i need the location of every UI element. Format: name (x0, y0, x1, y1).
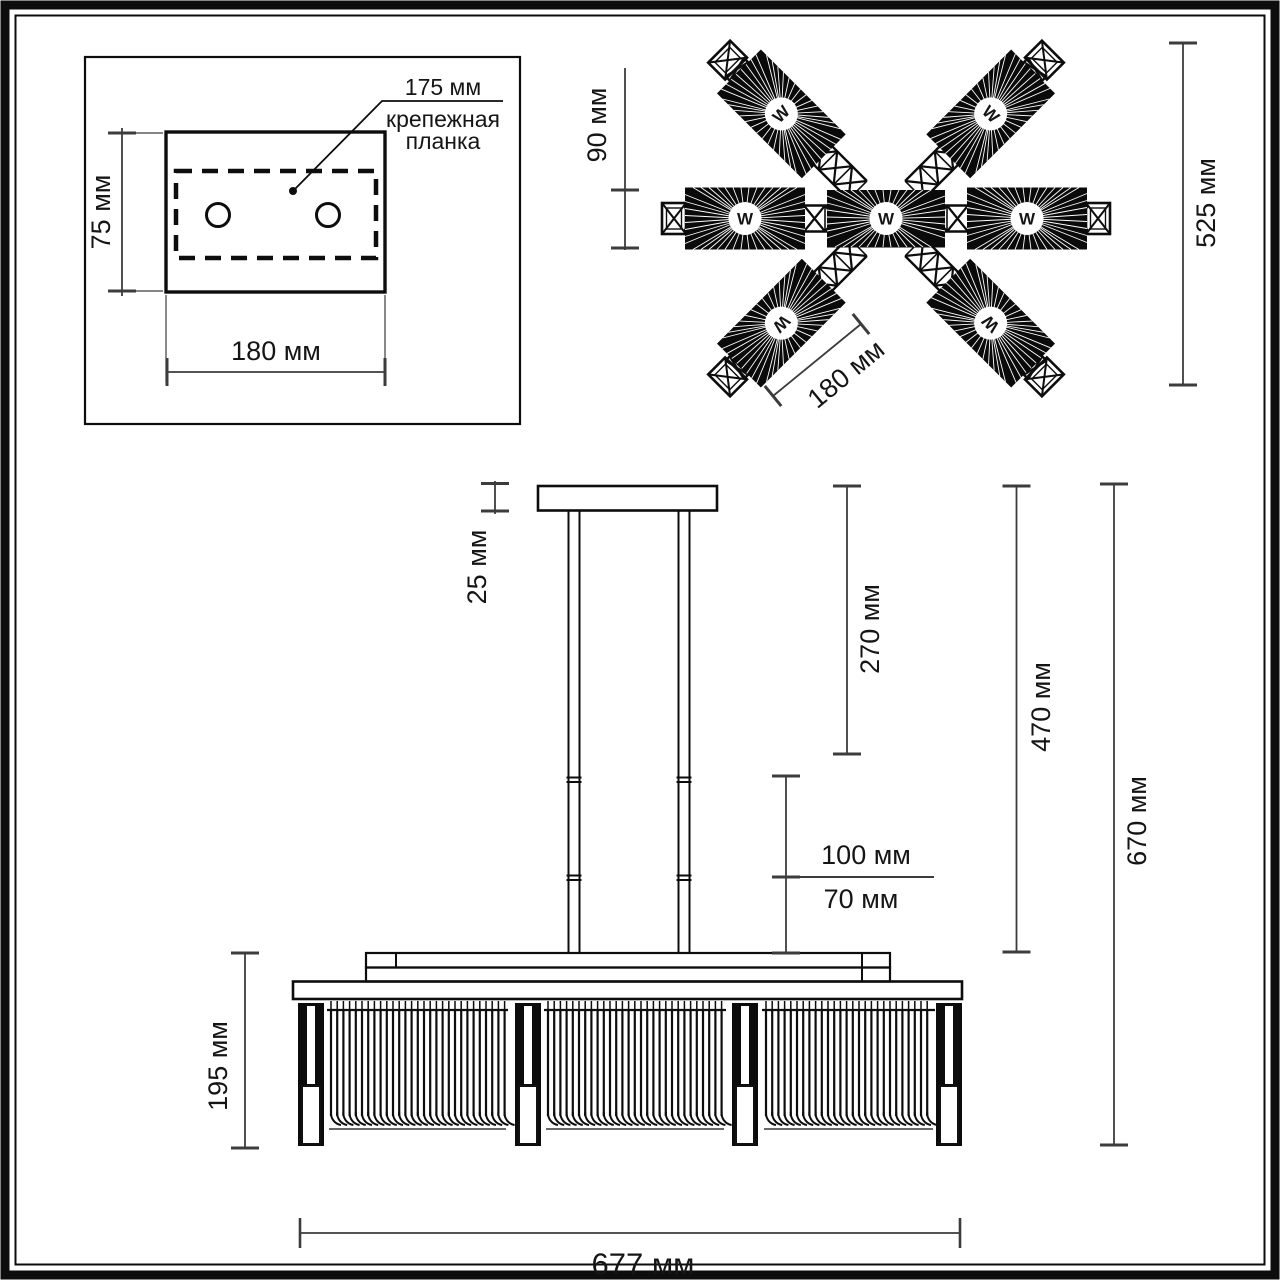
dim-195-label: 195 мм (203, 1021, 233, 1111)
dim-270-label: 270 мм (855, 584, 885, 674)
candle-post (298, 1003, 324, 1146)
dim-25-label: 25 мм (462, 530, 492, 605)
callout-label-2: планка (406, 128, 481, 154)
dim-100-label: 100 мм (821, 840, 911, 870)
post-slot (741, 1006, 749, 1084)
dim-470-label: 470 мм (1026, 662, 1056, 752)
lamp-wattage-mark: W (878, 210, 895, 229)
post-slot (945, 1006, 953, 1084)
dim-180-label: 180 мм (231, 336, 321, 366)
candle-post (732, 1003, 758, 1146)
post-slot (524, 1006, 532, 1084)
candle-sleeve (736, 1086, 754, 1144)
candle-sleeve (940, 1086, 958, 1144)
dim-75-label: 75 мм (86, 175, 116, 250)
candle-post (515, 1003, 541, 1146)
technical-drawing: 175 ммкрепежнаяпланка75 мм180 ммWWWWWWW9… (0, 0, 1280, 1280)
dim-677-label: 677 мм (592, 1247, 695, 1280)
lamp-wattage-mark: W (737, 210, 754, 229)
dim-90-label: 90 мм (582, 88, 612, 163)
candle-post (936, 1003, 962, 1146)
lamp-wattage-mark: W (1019, 210, 1036, 229)
post-slot (307, 1006, 315, 1084)
dim-670-label: 670 мм (1122, 776, 1152, 866)
dim-70-label: 70 мм (824, 884, 899, 914)
candle-sleeve (302, 1086, 320, 1144)
candle-sleeve (519, 1086, 537, 1144)
callout-value: 175 мм (405, 74, 481, 100)
dim-525-label: 525 мм (1191, 158, 1221, 248)
drawing-canvas: 175 ммкрепежнаяпланка75 мм180 ммWWWWWWW9… (0, 0, 1280, 1280)
